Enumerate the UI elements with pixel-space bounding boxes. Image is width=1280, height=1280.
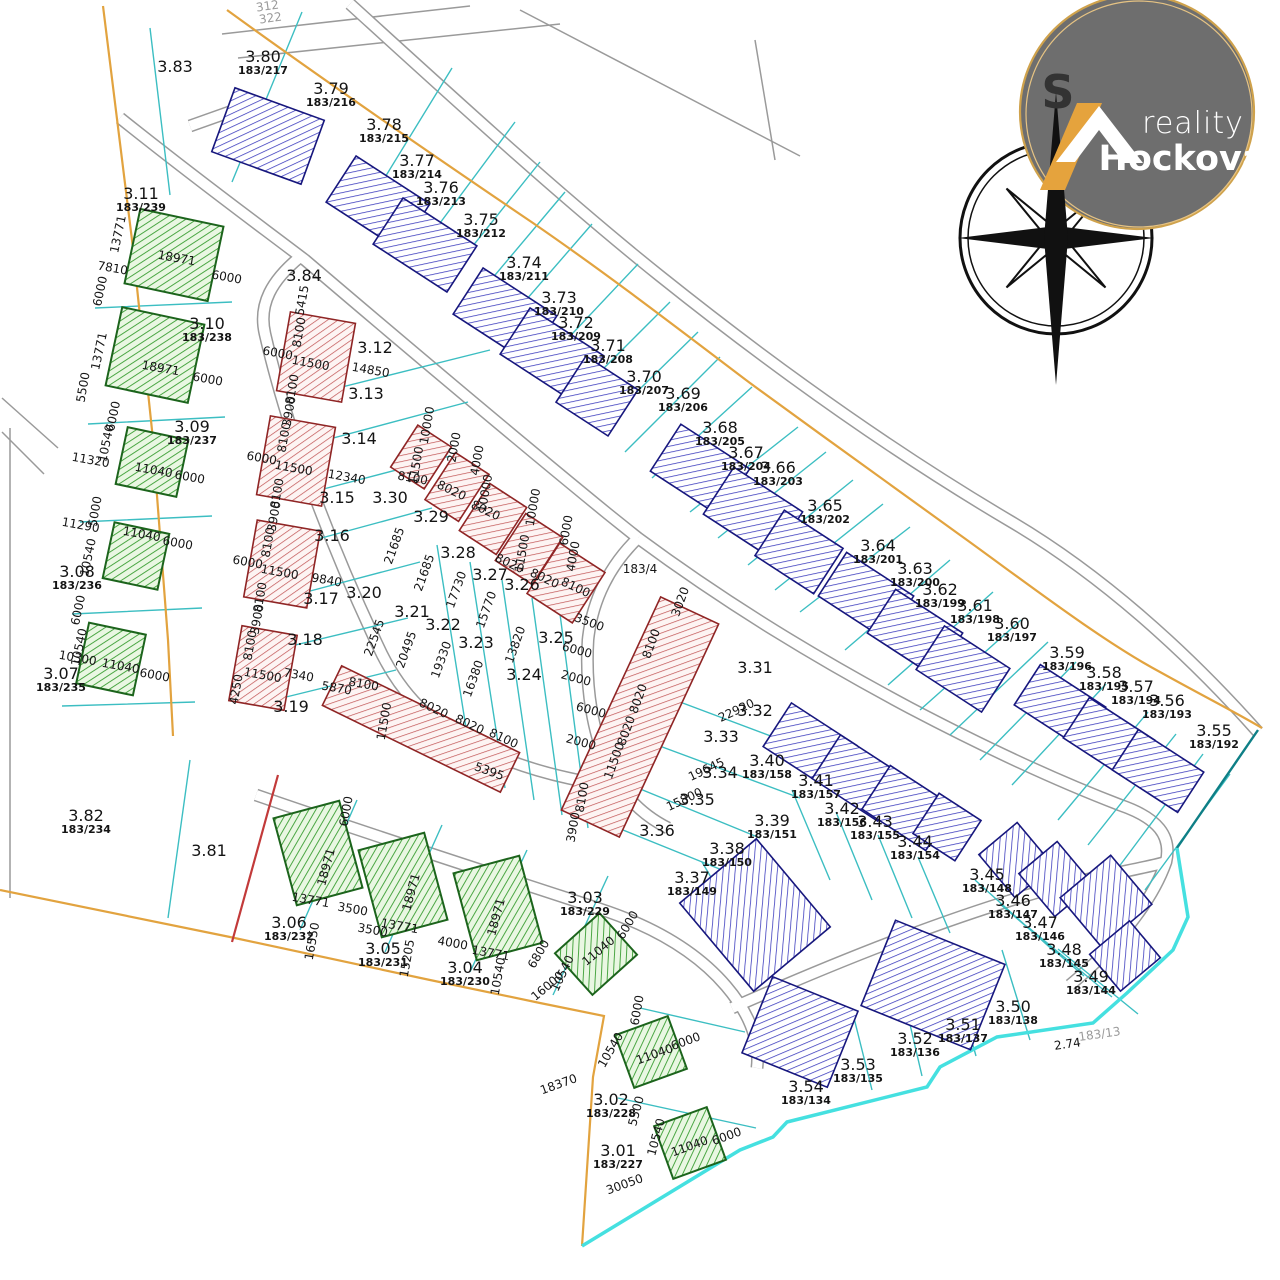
parcel-label: 3.29 (413, 507, 449, 526)
parcel-cadastral-number: 183/216 (306, 96, 356, 109)
dimension-label: 6000 (90, 275, 110, 308)
dimension-label: 30050 (604, 1171, 645, 1197)
logo-text-hockova: Hocková (1099, 139, 1266, 179)
parcel-cadastral-number: 183/197 (987, 631, 1037, 644)
dimension-label: 16380 (460, 658, 486, 699)
parcel-cadastral-number: 183/212 (456, 227, 506, 240)
dimension-label: 7810 (96, 259, 129, 278)
dimension-label: 5415 (293, 284, 312, 317)
parcel-label: 3.84 (286, 266, 322, 285)
parcel-cadastral-number: 183/236 (52, 579, 102, 592)
dimension-label: 19330 (428, 639, 454, 680)
parcel-cadastral-number: 183/144 (1066, 984, 1116, 997)
parcel-cadastral-number: 183/239 (116, 201, 166, 214)
parcel-label: 3.28 (440, 543, 476, 562)
parcel-label: 3.15 (319, 488, 355, 507)
parcel-cadastral-number: 183/206 (658, 401, 708, 414)
parcel-cadastral-number: 183/154 (890, 849, 940, 862)
dimension-label: 10540 (488, 956, 508, 996)
parcel-label: 3.12 (357, 338, 393, 357)
parcel-label: 3.17 (303, 589, 339, 608)
parcel-cadastral-number: 183/198 (950, 613, 1000, 626)
dimension-label: 5500 (74, 371, 93, 404)
parcel-label: 3.23 (458, 633, 494, 652)
dimension-label: 21685 (381, 525, 407, 566)
cadastral-site-plan: 3.833.80183/2173.79183/2163.78183/2153.7… (0, 0, 1280, 1280)
parcel-cadastral-number: 183/238 (182, 331, 232, 344)
dimension-label: 183/13 (1078, 1024, 1122, 1044)
parcel-label: 3.33 (703, 727, 739, 746)
parcel-cadastral-number: 183/217 (238, 64, 288, 77)
dimension-label: 6000 (210, 268, 243, 287)
dimension-label: 2.74 (1053, 1035, 1081, 1053)
parcel-label: 3.31 (737, 658, 773, 677)
dimension-label: 9840 (310, 571, 343, 590)
dimension-label: 14850 (351, 360, 391, 380)
dimension-label: 6000 (628, 994, 647, 1027)
parcel-cadastral-number: 183/138 (988, 1014, 1038, 1027)
compass-north-letter: S (1041, 65, 1074, 119)
parcel-cadastral-number: 183/213 (416, 195, 466, 208)
logo-badge: S reality Hocková (1020, 0, 1265, 385)
parcel-cadastral-number: 183/158 (742, 768, 792, 781)
parcel-cadastral-number: 183/234 (61, 823, 111, 836)
parcel-cadastral-number: 183/196 (1042, 660, 1092, 673)
parcel-cadastral-number: 183/215 (359, 132, 409, 145)
parcel-cadastral-number: 183/155 (850, 829, 900, 842)
dimension-label: 3900 (564, 811, 583, 844)
parcel-cadastral-number: 183/237 (167, 434, 217, 447)
parcel-cadastral-number: 183/137 (938, 1032, 988, 1045)
parcel-label: 3.13 (348, 384, 384, 403)
parcel-cadastral-number: 183/207 (619, 384, 669, 397)
parcel-label: 3.81 (191, 841, 227, 860)
logo-text-reality: reality (1142, 106, 1244, 141)
dimension-label: 17730 (443, 569, 469, 610)
dimension-label: 183/4 (623, 562, 658, 576)
dimension-label: 6000 (68, 594, 88, 627)
parcel-label: 3.18 (287, 630, 323, 649)
dimension-label: 6000 (191, 370, 224, 389)
dimension-label: 12340 (327, 467, 367, 487)
parcel-cadastral-number: 183/227 (593, 1158, 643, 1171)
dimension-label: 18370 (538, 1071, 579, 1097)
parcel-label: 3.20 (346, 583, 382, 602)
parcel-cadastral-number: 183/230 (440, 975, 490, 988)
parcel-label: 3.83 (157, 57, 193, 76)
dimension-label: 20495 (393, 629, 419, 670)
parcel-label: 3.27 (472, 565, 508, 584)
dimension-label: 322 (258, 10, 283, 27)
parcel-cadastral-number: 183/202 (800, 513, 850, 526)
dimension-label: 13820 (502, 624, 528, 665)
dimension-label: 6000 (138, 666, 171, 685)
parcel-cadastral-number: 183/201 (853, 553, 903, 566)
parcel-cadastral-number: 183/193 (1142, 708, 1192, 721)
parcel-label: 3.30 (372, 488, 408, 507)
dimension-label: 21685 (411, 552, 437, 593)
parcel-label: 3.36 (639, 821, 675, 840)
parcel-label: 3.16 (314, 526, 350, 545)
parcel-cadastral-number: 183/136 (890, 1046, 940, 1059)
dimension-label: 3500 (336, 900, 369, 919)
dimension-label: 13771 (107, 214, 129, 254)
dimension-label: 10540 (77, 537, 99, 577)
parcel-cadastral-number: 183/192 (1189, 738, 1239, 751)
dimension-label: 10000 (523, 487, 543, 527)
parcel-label: 3.14 (341, 429, 377, 448)
parcel-cadastral-number: 183/235 (36, 681, 86, 694)
parcel-cadastral-number: 183/151 (747, 828, 797, 841)
parcel-cadastral-number: 183/229 (560, 905, 610, 918)
parcel-cadastral-number: 183/203 (753, 475, 803, 488)
parcel-cadastral-number: 183/149 (667, 885, 717, 898)
parcel-label: 3.24 (506, 665, 542, 684)
parcel-label: 3.19 (273, 697, 309, 716)
parcel-cadastral-number: 183/208 (583, 353, 633, 366)
dimension-label: 13771 (88, 331, 110, 371)
parcel-cadastral-number: 183/134 (781, 1094, 831, 1107)
parcel-label: 3.22 (425, 615, 461, 634)
parcel-cadastral-number: 183/135 (833, 1072, 883, 1085)
site-plan-drawing: 3.833.80183/2173.79183/2163.78183/2153.7… (0, 0, 1280, 1280)
dimension-label: 4000 (436, 934, 469, 953)
parcel-cadastral-number: 183/211 (499, 270, 549, 283)
